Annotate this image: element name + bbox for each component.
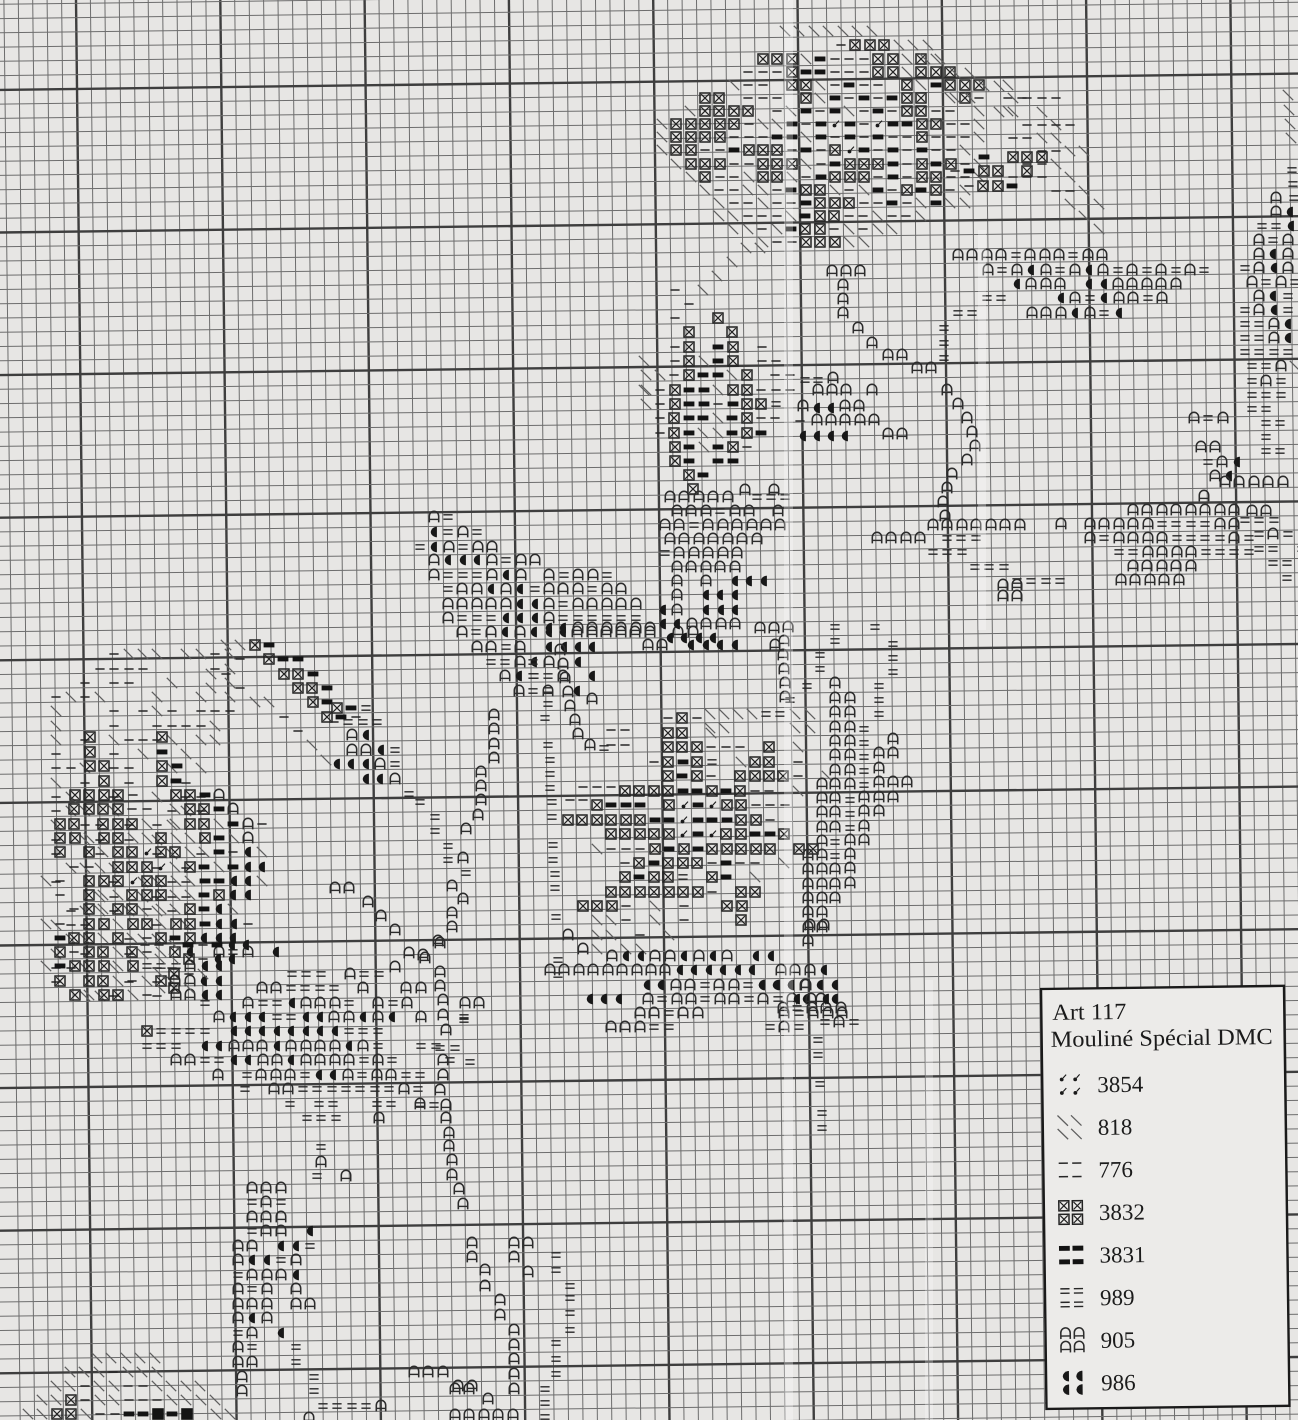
svg-text:905: 905 xyxy=(1100,1327,1135,1352)
svg-text:776: 776 xyxy=(1098,1157,1133,1182)
svg-text:989: 989 xyxy=(1100,1285,1135,1310)
svg-text:986: 986 xyxy=(1101,1370,1136,1395)
svg-text:3854: 3854 xyxy=(1097,1072,1144,1098)
svg-text:3831: 3831 xyxy=(1099,1242,1145,1268)
svg-text:3832: 3832 xyxy=(1099,1199,1145,1225)
svg-text:Mouliné Spécial DMC: Mouliné Spécial DMC xyxy=(1050,1024,1272,1052)
svg-text:Art 117: Art 117 xyxy=(1052,999,1126,1025)
svg-text:818: 818 xyxy=(1098,1114,1133,1139)
